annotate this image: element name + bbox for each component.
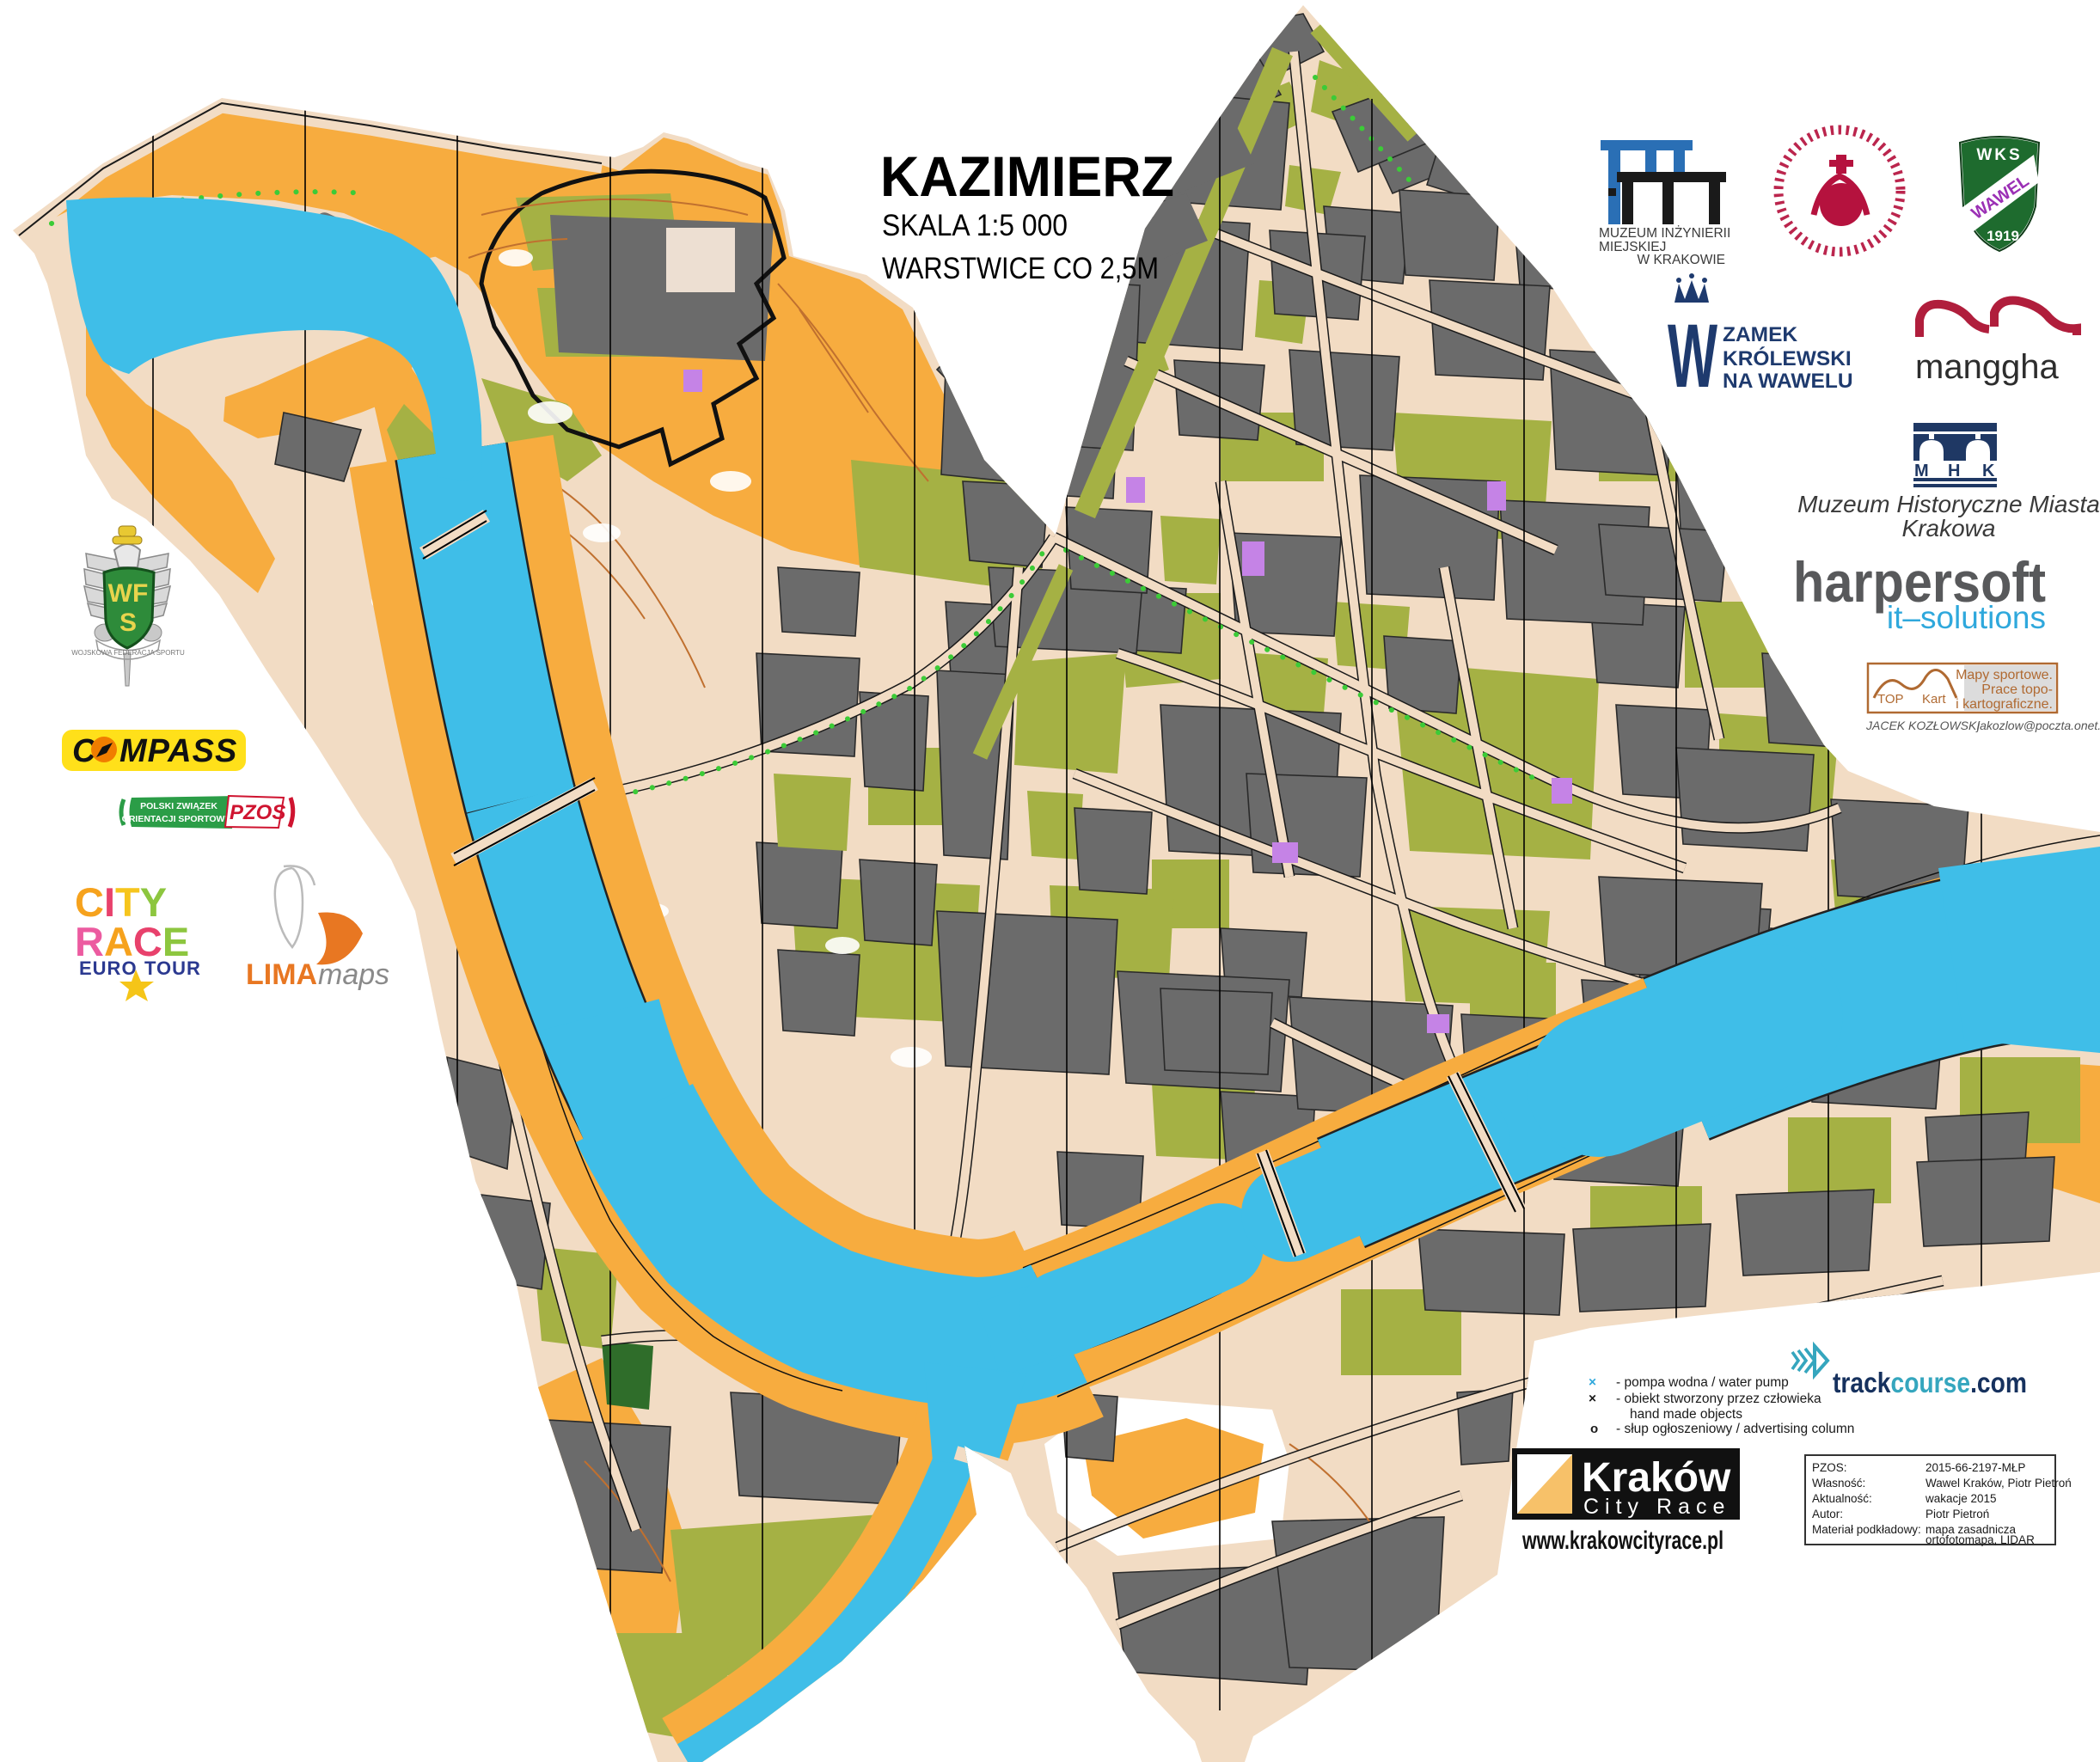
svg-text:wakacje 2015: wakacje 2015 <box>1925 1492 1997 1505</box>
svg-text:Prace topo-: Prace topo- <box>1981 682 2053 697</box>
svg-text:ORIENTACJI SPORTOWEJ: ORIENTACJI SPORTOWEJ <box>122 814 236 824</box>
svg-text:- obiekt stworzony przez człow: - obiekt stworzony przez człowieka <box>1616 1392 1821 1406</box>
svg-text:jakozlow@poczta.onet.pl: jakozlow@poczta.onet.pl <box>1975 719 2100 732</box>
svg-text:Muzeum Historyczne Miasta: Muzeum Historyczne Miasta <box>1797 491 2100 517</box>
svg-text:Własność:: Własność: <box>1812 1477 1865 1490</box>
svg-text:manggha: manggha <box>1915 348 2060 386</box>
svg-text:W: W <box>1668 306 1717 407</box>
svg-text:WARSTWICE CO 2,5M: WARSTWICE CO 2,5M <box>882 252 1159 285</box>
svg-text:MPASS: MPASS <box>119 733 237 769</box>
svg-text:×: × <box>1589 1392 1596 1406</box>
svg-text:Kart: Kart <box>1922 692 1946 707</box>
svg-text:1919: 1919 <box>1987 228 2019 244</box>
svg-text:ortofotomapa, LIDAR: ortofotomapa, LIDAR <box>1926 1533 2035 1546</box>
svg-text:JACEK KOZŁOWSKI: JACEK KOZŁOWSKI <box>1865 719 1980 732</box>
svg-text:K: K <box>1982 462 1995 480</box>
svg-text:www.krakowcityrace.pl: www.krakowcityrace.pl <box>1521 1526 1723 1555</box>
svg-text:Piotr Pietroń: Piotr Pietroń <box>1926 1508 1989 1520</box>
svg-text:City Race: City Race <box>1583 1495 1730 1519</box>
svg-text:- słup ogłoszeniowy / advertis: - słup ogłoszeniowy / advertising column <box>1616 1422 1854 1436</box>
svg-text:S: S <box>119 609 137 637</box>
svg-text:ZAMEK: ZAMEK <box>1723 323 1797 346</box>
svg-text:Krakowa: Krakowa <box>1902 515 1996 541</box>
svg-text:NA WAWELU: NA WAWELU <box>1723 370 1853 393</box>
svg-text:PZOS: PZOS <box>230 801 285 824</box>
svg-text:LIMA: LIMA <box>246 958 317 991</box>
svg-text:i kartograficzne.: i kartograficzne. <box>1956 697 2053 712</box>
svg-text:KAZIMIERZ: KAZIMIERZ <box>880 144 1174 208</box>
svg-text:W KRAKOWIE: W KRAKOWIE <box>1638 253 1725 267</box>
svg-text:hand made objects: hand made objects <box>1630 1407 1742 1422</box>
svg-text:MUZEUM INŻYNIERII: MUZEUM INŻYNIERII <box>1599 225 1730 241</box>
svg-text:- pompa wodna / water pump: - pompa wodna / water pump <box>1616 1375 1789 1390</box>
svg-text:TOP: TOP <box>1877 692 1904 707</box>
svg-text:TOUR: TOUR <box>144 957 201 979</box>
svg-text:M: M <box>1914 462 1929 480</box>
svg-text:×: × <box>1589 1375 1596 1390</box>
svg-text:H: H <box>1948 462 1960 480</box>
svg-text:Materiał podkładowy:: Materiał podkładowy: <box>1812 1523 1921 1536</box>
svg-text:PZOS:: PZOS: <box>1812 1461 1847 1474</box>
svg-text:Wawel Kraków, Piotr Pietroń: Wawel Kraków, Piotr Pietroń <box>1926 1477 2072 1490</box>
svg-text:EURO: EURO <box>79 957 138 979</box>
svg-text:POLSKI ZWIĄZEK: POLSKI ZWIĄZEK <box>140 801 217 811</box>
svg-text:WF: WF <box>108 579 149 608</box>
svg-text:Mapy sportowe.: Mapy sportowe. <box>1956 668 2053 682</box>
svg-text:SKALA 1:5 000: SKALA 1:5 000 <box>882 209 1068 242</box>
svg-text:WKS: WKS <box>1976 146 2022 164</box>
svg-text:2015-66-2197-MŁP: 2015-66-2197-MŁP <box>1926 1461 2025 1474</box>
svg-text:it–solutions: it–solutions <box>1887 600 2046 635</box>
svg-text:Autor:: Autor: <box>1812 1508 1843 1520</box>
svg-text:WOJSKOWA FEDERACJA SPORTU: WOJSKOWA FEDERACJA SPORTU <box>71 649 185 657</box>
svg-text:KRÓLEWSKI: KRÓLEWSKI <box>1723 346 1852 370</box>
svg-text:o: o <box>1590 1422 1598 1436</box>
svg-text:Aktualność:: Aktualność: <box>1812 1492 1872 1505</box>
svg-text:maps: maps <box>318 958 389 991</box>
svg-text:trackcourse.com: trackcourse.com <box>1833 1367 2027 1398</box>
